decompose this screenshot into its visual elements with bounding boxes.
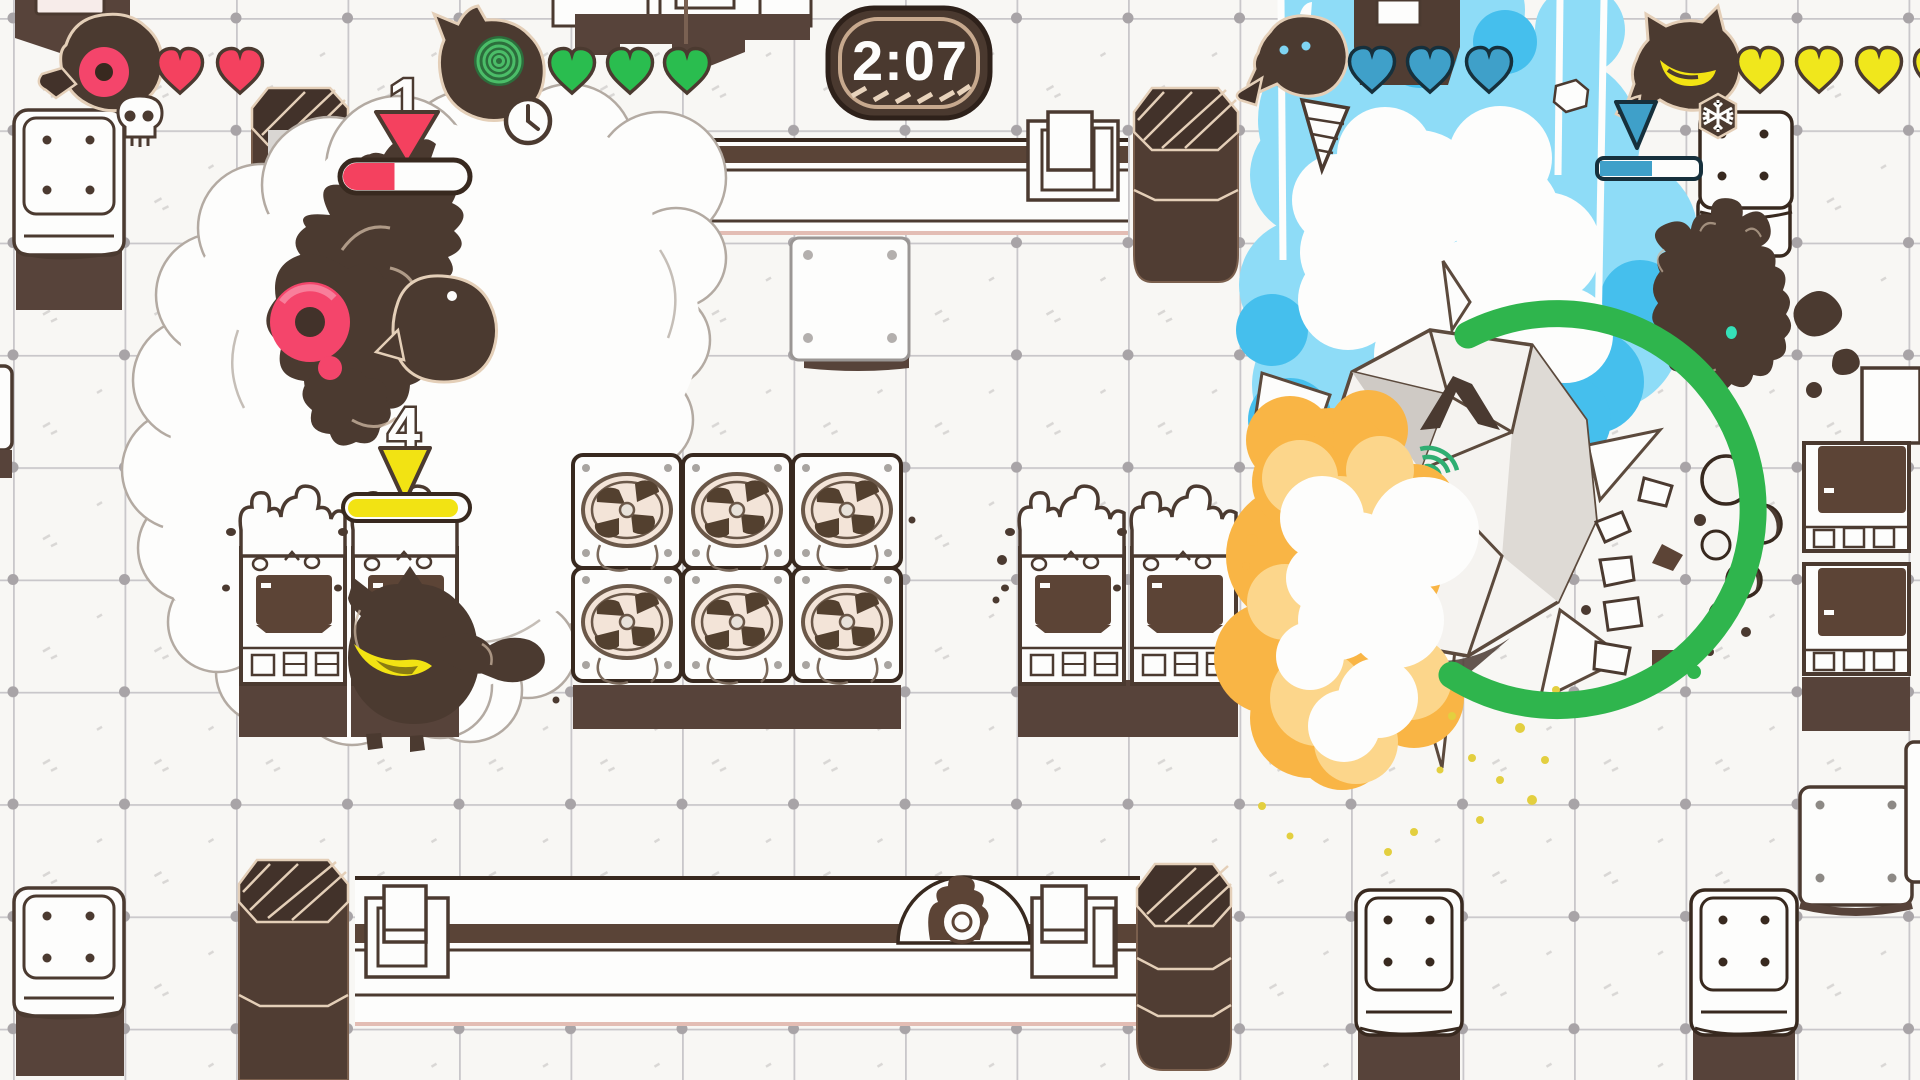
svg-text:2:07: 2:07 (852, 29, 968, 92)
